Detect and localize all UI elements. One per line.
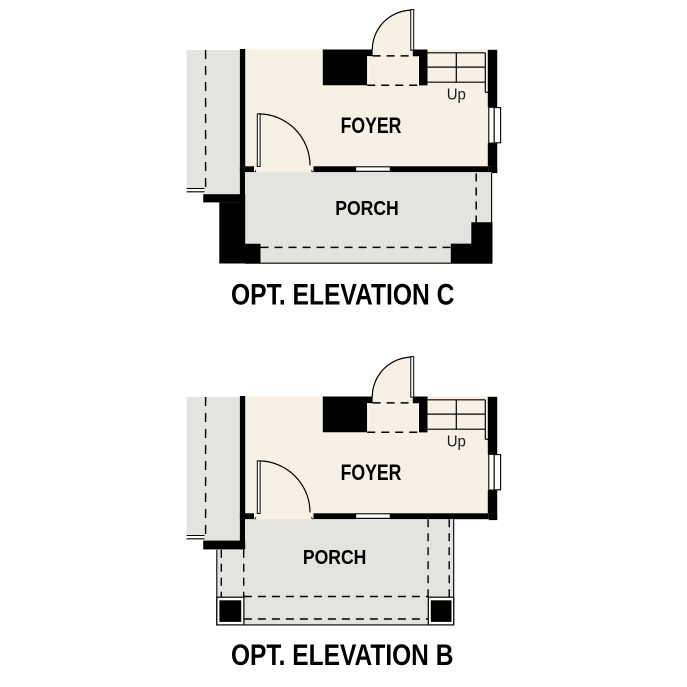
svg-text:FOYER: FOYER [341,113,402,138]
svg-text:OPT. ELEVATION B: OPT. ELEVATION B [231,639,453,672]
svg-text:PORCH: PORCH [303,546,367,569]
svg-text:PORCH: PORCH [335,197,399,220]
svg-text:Up: Up [447,434,466,451]
svg-text:FOYER: FOYER [341,460,402,485]
svg-text:Up: Up [447,87,466,104]
svg-text:OPT. ELEVATION C: OPT. ELEVATION C [231,279,454,312]
